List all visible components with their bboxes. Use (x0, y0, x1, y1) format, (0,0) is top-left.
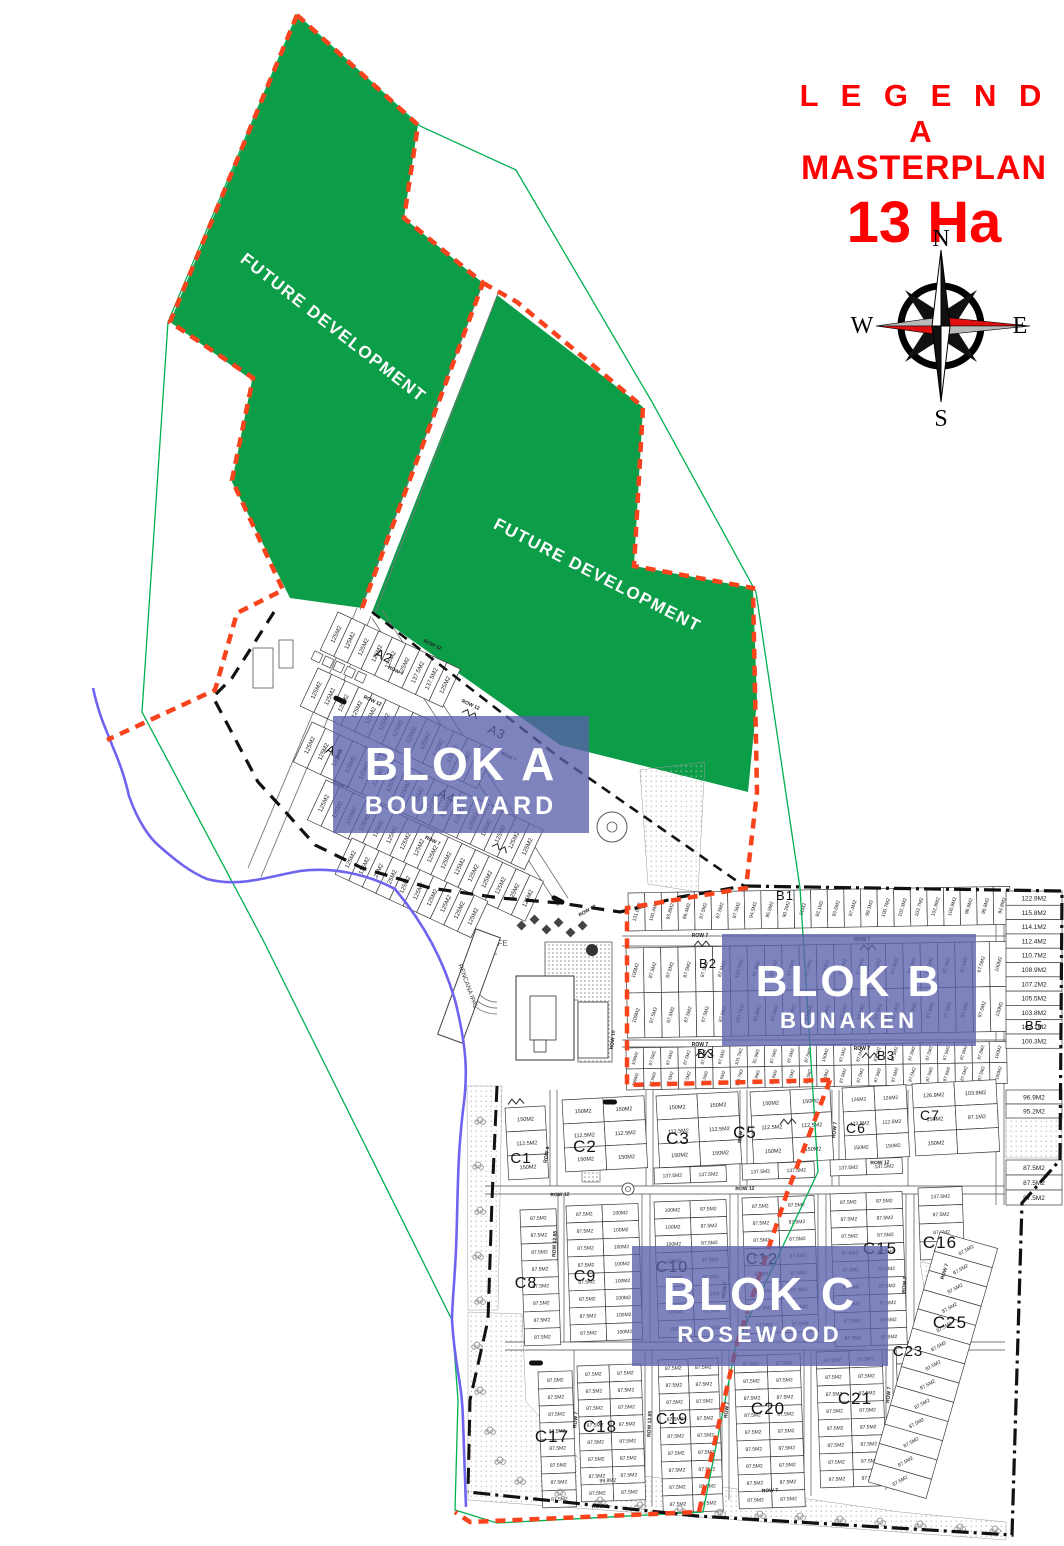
section-label-C9: C9 (574, 1268, 596, 1285)
building-dome (586, 944, 598, 956)
lot-size-label: 126.9M2 (923, 1092, 945, 1099)
lot-size-label: 87.5M2 (547, 1394, 564, 1401)
lot-size-label: 87.5M2 (858, 1373, 875, 1380)
row-label: ROW 12.65 (552, 1231, 559, 1258)
lot-size-label: 87.5M2 (666, 1399, 683, 1406)
lot-size-label: 87.5M2 (780, 1496, 797, 1503)
lot-grid-C1: 150M2112.5M2150M2 (505, 1106, 549, 1180)
section-label-C1: C1 (510, 1150, 531, 1167)
lot-size-label: 87.5M2 (860, 1441, 877, 1448)
lot-size-label: 87.5M2 (779, 1462, 796, 1469)
lot-size-label: 87.5M2 (589, 1490, 606, 1497)
lot-size-label: 150M2 (577, 1156, 594, 1163)
building-east (578, 1002, 608, 1058)
row-label: ROW 12 (870, 1160, 890, 1167)
section-label-B5: B5 (1025, 1018, 1043, 1033)
lot-size-label: 100M2 (616, 1295, 632, 1302)
section-label-C23: C23 (893, 1343, 924, 1360)
lot-size-label: 87.5M2 (876, 1215, 893, 1222)
lot-size-label: 100M2 (615, 1278, 631, 1285)
lot-size-label: 87.5M2 (778, 1428, 795, 1435)
lot-size-label: 112.5M2 (761, 1124, 782, 1131)
row-label: ROW 7 (831, 1121, 838, 1138)
lot-size-label: 87.5M2 (533, 1317, 550, 1324)
lot-size-label: 87.5M2 (840, 1199, 857, 1206)
lot-grid-C15t: 137.5M2137.5M2 (830, 1157, 903, 1176)
lot-size-label: 150M2 (710, 1102, 727, 1109)
lot-size-label: 150M2 (669, 1104, 686, 1111)
section-label-C8: C8 (515, 1275, 537, 1292)
lot-size-label: 87.5M2 (585, 1388, 602, 1395)
compass-east-label: E (1013, 313, 1028, 339)
lot-size-label: 87.5M2 (665, 1382, 682, 1389)
lot-size-label: 87.5M2 (549, 1445, 566, 1452)
lot-size-label: 87.5M2 (825, 1374, 842, 1381)
lot-size-label: 87.5M2 (859, 1407, 876, 1414)
compass-rose: N S E W (846, 230, 1036, 430)
lot-size-label: 150M2 (671, 1152, 688, 1159)
row-label: ROW 12.65 (647, 1411, 654, 1438)
roundabout (597, 812, 627, 842)
lot-size-label: 87.5M2 (620, 1455, 637, 1462)
lot-size-label: 150M2 (762, 1100, 779, 1107)
blok-a-title: BLOK A (365, 738, 558, 790)
lot-size-label: 87.5M2 (933, 1212, 950, 1219)
lot-size-label: 87.5M2 (700, 1223, 717, 1230)
lot-size-label: 96.9M2 (1023, 1094, 1045, 1101)
lot-size-label: 87.5M2 (587, 1439, 604, 1446)
lot-size-label: 87.5M2 (695, 1381, 712, 1388)
lot-size-label: 87.5M2 (827, 1425, 844, 1432)
lot-size-label: 87.5M2 (752, 1220, 769, 1227)
row-label: ROW 10 (609, 1030, 617, 1050)
lot-size-label: 150M2 (853, 1144, 869, 1151)
lot-size-label: 100.3M2 (1021, 1038, 1047, 1045)
lot-size-label: 87.5M2 (776, 1377, 793, 1384)
lot-size-label: 100M2 (613, 1227, 629, 1234)
lot-size-label: 87.5M2 (745, 1446, 762, 1453)
lot-size-label: 87.5M2 (826, 1408, 843, 1415)
lot-size-label: 87.5M2 (577, 1245, 594, 1252)
lot-size-label: 87.5M2 (547, 1377, 564, 1384)
lot-size-label: 87.5M2 (534, 1334, 551, 1341)
lot-size-label: 87.5M2 (697, 1415, 714, 1422)
lot-size-label: 112.5M2 (882, 1119, 902, 1126)
lot-size-label: 87.5M2 (841, 1233, 858, 1240)
lot-size-label: 87.5M2 (778, 1445, 795, 1452)
lot-size-label: 108.9M2 (1021, 967, 1047, 974)
lot-size-label: 87.5M2 (746, 1463, 763, 1470)
lot-grid-C10t: 137.5M2137.5M2 (654, 1165, 727, 1184)
lot-size-label: 87.5M2 (530, 1215, 547, 1222)
row-label: ROW 7 (854, 1046, 871, 1052)
lot-size-label: 87.5M2 (533, 1300, 550, 1307)
masterplan-page: CAFE RENCANA IPAL (0, 0, 1064, 1546)
row-label: ROW 12 (735, 1186, 755, 1193)
building-inner (530, 996, 556, 1040)
lot-size-label: 112.5M2 (615, 1130, 636, 1137)
lot-size-label: 87.5M2 (667, 1433, 684, 1440)
lot-size-label: 126M2 (883, 1095, 899, 1102)
lot-size-label: 107.2M2 (1021, 981, 1047, 988)
lot-size-label: 87.5M2 (621, 1489, 638, 1496)
lot-size-label: 87.5M2 (747, 1480, 764, 1487)
lot-size-label: 100M2 (665, 1224, 681, 1231)
lot-grid-C12t: 137.5M2137.5M2 (742, 1161, 815, 1180)
lot-size-label: 114.1M2 (1022, 924, 1047, 931)
section-label-C25: C25 (933, 1313, 967, 1332)
lot-size-label: 87.5M2 (579, 1296, 596, 1303)
section-label-B2: B2 (699, 956, 717, 971)
lot-size-label: 112.4M2 (1022, 938, 1047, 945)
lot-size-label: 87.5M2 (617, 1387, 634, 1394)
lot-size-label: 150M2 (928, 1140, 945, 1147)
row-label: ROW 12 (550, 1192, 570, 1199)
lot-size-label: 87.5M2 (828, 1459, 845, 1466)
lot-size-label: 87.5M2 (531, 1249, 548, 1256)
lot-size-label: 87.5M2 (753, 1237, 770, 1244)
lot-size-label: 87.5M2 (788, 1219, 805, 1226)
lot-size-label: 87.5M2 (669, 1484, 686, 1491)
lot-grid-C19: 87.5M287.5M287.5M287.5M287.5M287.5M287.5… (658, 1358, 723, 1513)
lot-size-label: 87.5M2 (576, 1228, 593, 1235)
blok-b-subtitle: BUNAKEN (780, 1008, 918, 1033)
lot-size-label: 100M2 (613, 1210, 629, 1217)
lot-size-label: 87.5M2 (745, 1429, 762, 1436)
lot-size-label: 87.5M2 (876, 1198, 893, 1205)
lot-size-label: 87.5M2 (580, 1330, 597, 1337)
lot-size-label: 137.5M2 (662, 1173, 682, 1180)
section-label-C21: C21 (838, 1389, 872, 1408)
lot-size-label: 87.5M2 (620, 1472, 637, 1479)
lot-size-label: 100M2 (616, 1312, 632, 1319)
lot-size-label: 150M2 (616, 1106, 633, 1113)
lot-size-label: 150M2 (885, 1143, 901, 1150)
lot-size-label: 87.5M2 (530, 1232, 547, 1239)
compass-north-label: N (932, 230, 949, 252)
gate-marker-icon (529, 1361, 543, 1366)
lot-size-label: 103.8M2 (1021, 1010, 1047, 1017)
lot-grid-C20: 87.5M287.5M287.5M287.5M287.5M287.5M287.5… (734, 1354, 805, 1509)
lot-size-label: 87.5M2 (860, 1424, 877, 1431)
blok-c-overlay: BLOK C ROSEWOOD (632, 1246, 888, 1366)
lot-size-label: 112.5M2 (709, 1126, 730, 1133)
row-label: ROW 7 (692, 933, 709, 939)
lot-size-label: 87.5M2 (840, 1216, 857, 1223)
lot-size-label: 87.5M2 (585, 1371, 602, 1378)
lot-size-label: 87.5M2 (827, 1442, 844, 1449)
lot-size-label: 87.5M2 (619, 1438, 636, 1445)
plaza-diamonds (517, 915, 588, 938)
legend-subtitle: MASTERPLAN (796, 149, 1052, 188)
lot-size-label: 126M2 (851, 1097, 867, 1104)
blok-c-title: BLOK C (663, 1268, 857, 1320)
lot-size-label: 150M2 (618, 1154, 635, 1161)
lot-size-label: 87.5M2 (617, 1370, 634, 1377)
lot-size-label: 87.5M2 (829, 1476, 846, 1483)
section-label-C20: C20 (751, 1399, 785, 1418)
lot-size-label: 150M2 (805, 1146, 822, 1153)
lot-size-label: 99.8M2 (599, 1478, 616, 1485)
lot-size-label: 87.5M2 (789, 1236, 806, 1243)
lot-size-label: 87.5M2 (618, 1404, 635, 1411)
row-label: ROW 7 (901, 1276, 908, 1293)
lot-size-label: 137.5M2 (750, 1169, 770, 1176)
row-label: ROW 7 (762, 1488, 779, 1495)
blok-a-overlay: BLOK A BOULEVARD (333, 716, 589, 833)
lot-size-label: 137.5M2 (838, 1165, 858, 1172)
row-label: ROW 7 (692, 1042, 709, 1048)
lot-size-label: 115.8M2 (1022, 910, 1047, 917)
legend-title: L E G E N D A (796, 78, 1052, 149)
section-label-C19: C19 (656, 1411, 688, 1428)
section-label-C18: C18 (583, 1417, 617, 1436)
lot-size-label: 112.5M2 (516, 1140, 537, 1147)
section-label-C17: C17 (535, 1427, 569, 1446)
lot-size-label: 87.5M2 (752, 1203, 769, 1210)
gate-marker-icon (603, 1100, 617, 1105)
lot-size-label: 87.5M2 (668, 1450, 685, 1457)
lot-size-label: 87.5M2 (550, 1479, 567, 1486)
section-label-C6: C6 (846, 1120, 866, 1136)
lot-grid-B-right2: 96.9M295.2M2 (1006, 1090, 1062, 1118)
lot-size-label: 87.5M2 (877, 1232, 894, 1239)
lot-size-label: 150M2 (802, 1098, 819, 1105)
lot-size-label: 87.5M2 (697, 1432, 714, 1439)
road-zigzag-icon (508, 1099, 524, 1105)
lot-size-label: 87.5M2 (780, 1479, 797, 1486)
lot-grid-C2: 150M2150M2112.5M2112.5M2150M2150M2 (562, 1096, 648, 1172)
lot-size-label: 100M2 (617, 1329, 633, 1336)
lot-size-label: 95.2M2 (1023, 1108, 1045, 1115)
lot-size-label: 87.5M2 (548, 1411, 565, 1418)
road-zigzag-icon (694, 941, 710, 946)
section-label-C3: C3 (666, 1129, 690, 1148)
lot-grid-B-right3: 87.5M287.5M287.5M2 (1006, 1160, 1062, 1205)
blok-a-subtitle: BOULEVARD (365, 792, 557, 820)
road-node (622, 1183, 634, 1195)
lot-size-label: 87.5M2 (1023, 1165, 1045, 1172)
section-label-C16: C16 (923, 1233, 957, 1252)
compass-west-label: W (851, 313, 874, 339)
lot-size-label: 100M2 (614, 1261, 630, 1268)
lot-size-label: 97.1M2 (968, 1114, 987, 1121)
row-label: ROW 12 (460, 698, 480, 712)
blok-b-title: BLOK B (756, 957, 943, 1006)
section-label-B3: B3 (877, 1048, 895, 1063)
lot-size-label: 150M2 (575, 1108, 592, 1115)
lot-size-label: 150M2 (765, 1148, 782, 1155)
blok-b-overlay: BLOK B BUNAKEN (722, 934, 976, 1046)
section-label-C2: C2 (573, 1137, 597, 1156)
lot-size-label: 87.5M2 (588, 1456, 605, 1463)
lot-size-label: 87.5M2 (696, 1398, 713, 1405)
lot-size-label: 100M2 (614, 1244, 630, 1251)
row-label: ROW 7 (572, 1411, 579, 1428)
lot-size-label: 87.5M2 (586, 1405, 603, 1412)
lot-size-label: 87.5M2 (532, 1266, 549, 1273)
lot-parcel (956, 1128, 999, 1154)
lot-size-label: 110.7M2 (1022, 953, 1047, 960)
lot-size-label: 103.9M2 (965, 1090, 987, 1097)
compass-south-label: S (934, 406, 947, 430)
lot-grid-B1: 131.6M2100.4M293.8M289.4M287.5M287.5M287… (628, 886, 1010, 931)
section-label-C7: C7 (920, 1107, 940, 1123)
lot-size-label: 137.5M2 (930, 1194, 950, 1201)
lot-size-label: 87.5M2 (700, 1206, 717, 1213)
compass-ns-needle (932, 250, 950, 402)
lot-size-label: 105.5M2 (1021, 996, 1047, 1003)
lot-size-label: 87.5M2 (576, 1211, 593, 1218)
lot-size-label: 137.5M2 (698, 1172, 718, 1179)
lot-size-label: 87.5M2 (665, 1365, 682, 1372)
lot-size-label: 87.5M2 (747, 1497, 764, 1504)
lot-size-label: 122.9M2 (1021, 895, 1047, 902)
lot-size-label: 87.5M2 (550, 1462, 567, 1469)
lot-size-label: 100M2 (665, 1207, 681, 1214)
lot-size-label: 87.5M2 (668, 1467, 685, 1474)
section-label-B1: B1 (776, 888, 794, 903)
lot-size-label: 150M2 (712, 1150, 729, 1157)
lot-size-label: 87.5M2 (619, 1421, 636, 1428)
lot-size-label: 87.5M2 (743, 1378, 760, 1385)
blok-c-subtitle: ROSEWOOD (677, 1322, 842, 1347)
lot-size-label: 87.5M2 (579, 1313, 596, 1320)
lot-size-label: 87.5M2 (701, 1240, 718, 1247)
building-annex (534, 1040, 546, 1052)
lot-size-label: 150M2 (517, 1116, 534, 1123)
